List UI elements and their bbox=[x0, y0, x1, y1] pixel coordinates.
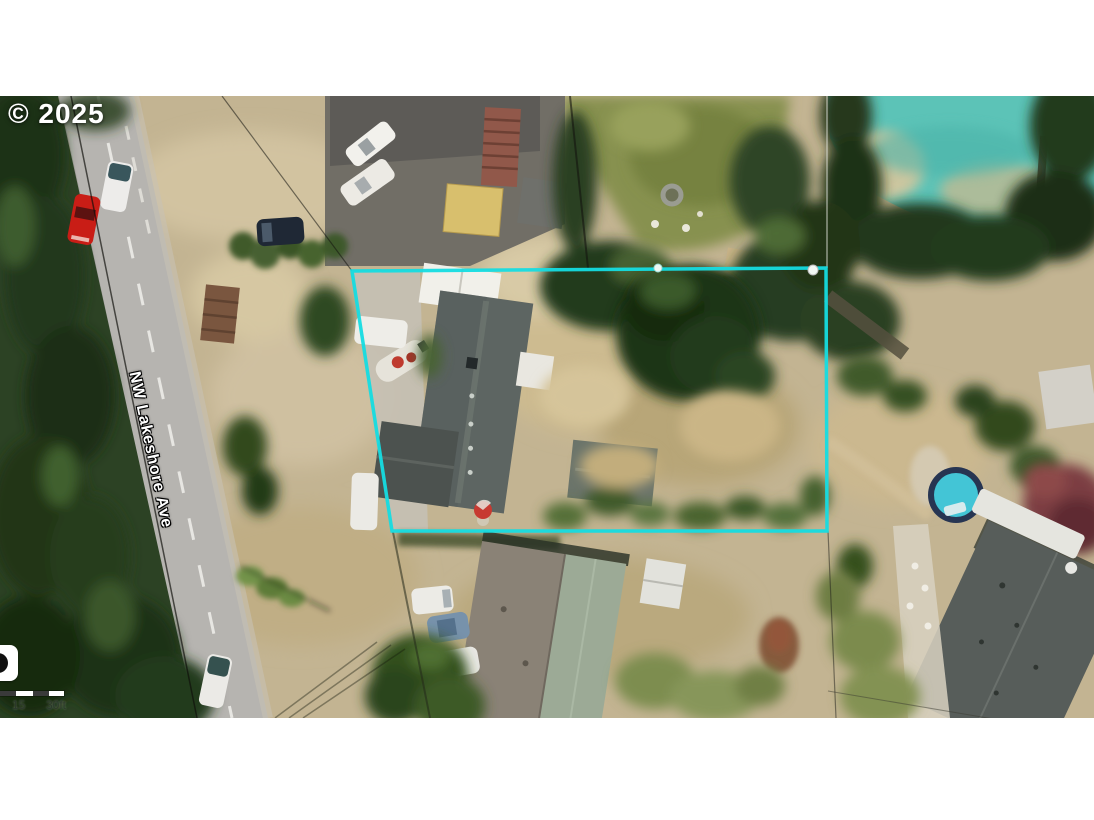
scale-end-label: 30ft bbox=[46, 698, 66, 712]
copyright-watermark: © 2025 bbox=[8, 98, 105, 130]
rust-roof bbox=[481, 107, 521, 187]
pale-roof-edge bbox=[1038, 365, 1094, 430]
map-scale-bar: 15 30ft bbox=[0, 691, 80, 717]
boundary-marker-dot bbox=[808, 265, 818, 275]
yellow-tarp-structure bbox=[443, 184, 503, 237]
aerial-scene bbox=[0, 96, 1094, 718]
dark-suv bbox=[256, 216, 305, 246]
scale-mid-label: 15 bbox=[12, 698, 25, 712]
scale-segment bbox=[16, 691, 33, 696]
scale-bar-segments bbox=[0, 691, 64, 696]
letterbox-top bbox=[0, 0, 1094, 96]
logo-dot-icon bbox=[0, 653, 8, 673]
letterbox-bottom bbox=[0, 718, 1094, 820]
aerial-photo: © 2025 NW Lakeshore Ave 15 30ft bbox=[0, 96, 1094, 718]
white-van-southwest bbox=[350, 473, 379, 531]
brown-shed bbox=[200, 284, 240, 343]
screenshot-canvas: © 2025 NW Lakeshore Ave 15 30ft bbox=[0, 0, 1094, 820]
map-provider-logo-icon bbox=[0, 645, 18, 681]
round-pool bbox=[928, 467, 984, 523]
garden-patch bbox=[759, 617, 799, 673]
fire-pit-ring bbox=[663, 186, 681, 204]
boundary-marker-dot bbox=[654, 264, 662, 272]
white-trailer bbox=[640, 558, 687, 609]
garage-roof bbox=[371, 421, 459, 507]
chimney bbox=[466, 357, 478, 369]
scale-segment bbox=[33, 691, 49, 696]
scale-segment bbox=[0, 691, 16, 696]
scale-segment bbox=[49, 691, 64, 696]
